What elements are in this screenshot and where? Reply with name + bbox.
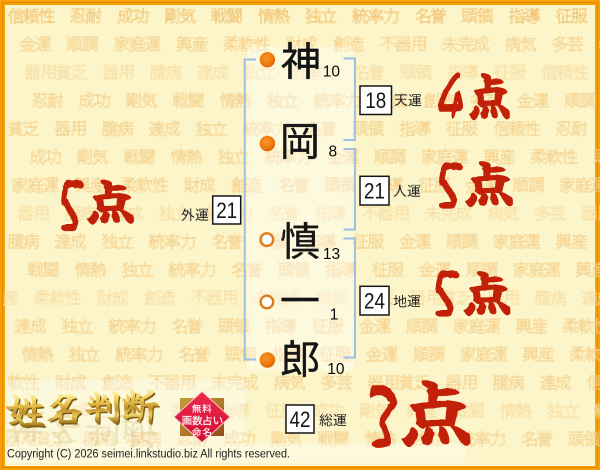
svg-text:10: 10 — [323, 63, 341, 80]
svg-text:10: 10 — [327, 361, 345, 378]
svg-text:24: 24 — [364, 288, 385, 313]
svg-text:1: 1 — [330, 307, 339, 324]
svg-text:42: 42 — [290, 407, 311, 432]
svg-text:21: 21 — [364, 178, 385, 203]
svg-text:13: 13 — [323, 246, 340, 263]
svg-text:21: 21 — [216, 198, 237, 223]
svg-text:Copyright (C) 2026 seimei.link: Copyright (C) 2026 seimei.linkstudio.biz… — [7, 449, 290, 461]
svg-text:8: 8 — [329, 144, 338, 161]
svg-text:18: 18 — [365, 88, 386, 113]
